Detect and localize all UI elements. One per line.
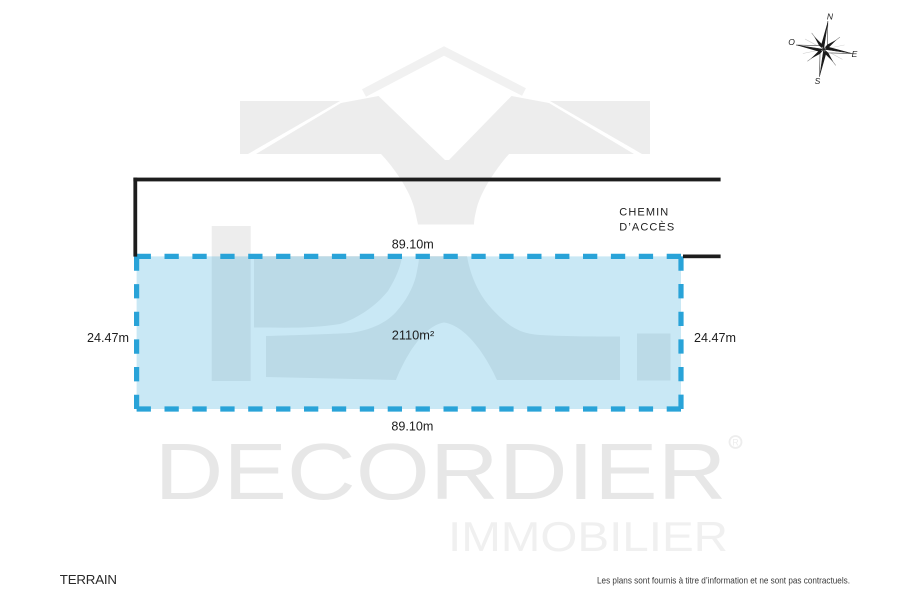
svg-text:N: N [827,11,834,21]
svg-text:89.10m: 89.10m [391,419,433,433]
svg-text:CHEMIN: CHEMIN [619,207,669,219]
svg-text:E: E [852,49,858,59]
svg-text:Les plans sont fournis à titre: Les plans sont fournis à titre d’informa… [597,575,850,585]
svg-text:O: O [788,37,795,47]
svg-text:DECORDIER: DECORDIER [155,427,727,516]
svg-text:D’ACCÈS: D’ACCÈS [619,221,675,234]
svg-text:24.47m: 24.47m [694,331,736,345]
svg-text:S: S [815,76,821,86]
svg-text:2110m²: 2110m² [392,327,435,342]
svg-text:89.10m: 89.10m [392,237,434,251]
svg-text:IMMOBILIER: IMMOBILIER [448,513,728,560]
svg-text:24.47m: 24.47m [87,331,129,345]
svg-text:TERRAIN: TERRAIN [60,572,117,587]
svg-text:R: R [732,438,739,448]
